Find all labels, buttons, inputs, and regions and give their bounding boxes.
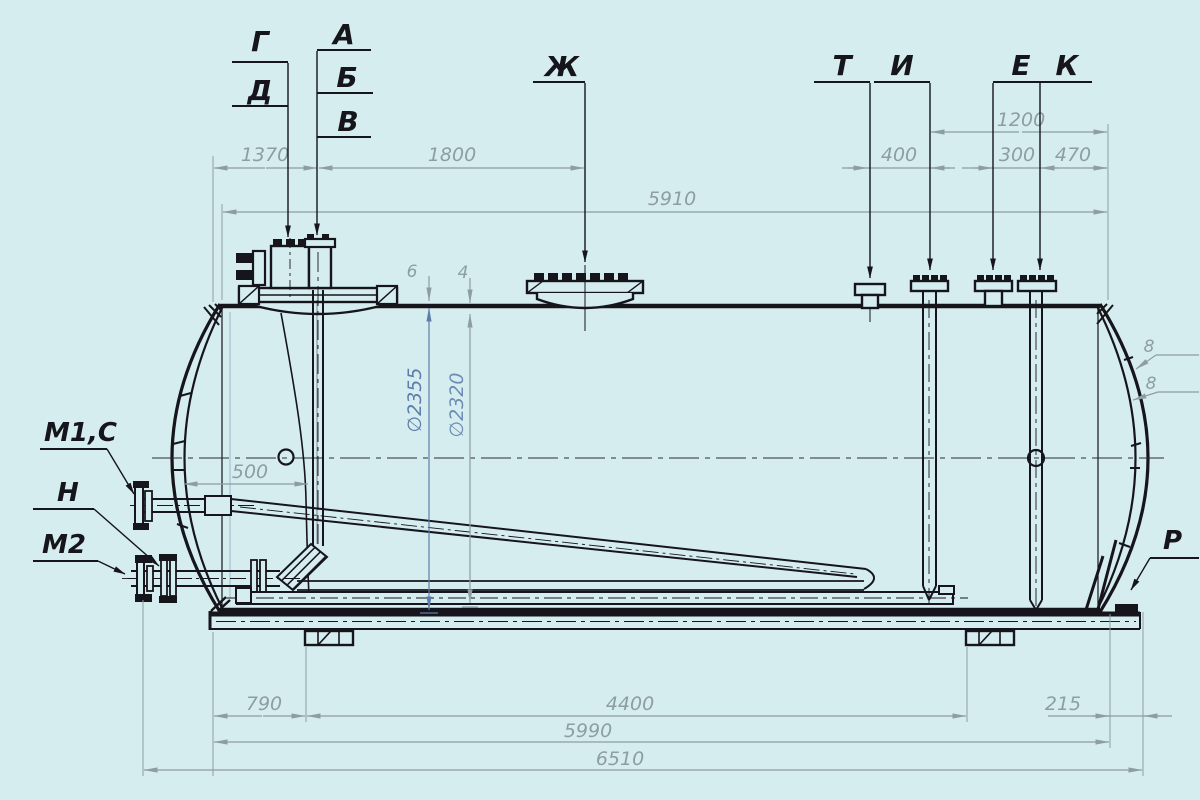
dim-thick-6: 6 xyxy=(407,262,418,282)
nozzle-label-m1c: М1,С xyxy=(44,418,117,448)
dim-6510: 6510 xyxy=(596,748,644,770)
m1c-flange-bar1 xyxy=(135,487,143,525)
m2-flange-bar1 xyxy=(137,562,144,595)
bottom-pipe-end-lip xyxy=(939,586,954,594)
grounding-pad-p xyxy=(1115,604,1138,613)
nozzle-label-d: Д xyxy=(247,74,273,107)
drawing-canvas: 1200 1370 1800 400 300 470 5910 500 ∅235… xyxy=(0,0,1200,800)
dim-1200: 1200 xyxy=(997,109,1045,131)
dim-1800: 1800 xyxy=(428,144,476,166)
nozzle-label-a: А xyxy=(331,18,355,51)
nozzle-abv-flange xyxy=(305,239,335,247)
n-flange-bar2 xyxy=(170,560,176,596)
inner-flange-bar2 xyxy=(260,560,266,596)
m1c-flange-bar2 xyxy=(145,491,152,521)
nozzle-label-t: Т xyxy=(832,49,853,82)
bottom-pipe-left-block xyxy=(236,588,251,603)
nozzle-label-p: Р xyxy=(1163,526,1182,556)
n-flange-bar1 xyxy=(161,560,167,596)
pipe-k-internal xyxy=(1028,292,1044,610)
nozzle-label-v: В xyxy=(337,105,358,138)
dim-790: 790 xyxy=(246,693,282,715)
dim-5910: 5910 xyxy=(648,188,696,210)
dim-thick-8-outer: 8 xyxy=(1144,337,1155,357)
flange-plate xyxy=(911,281,948,291)
side-flange-gd xyxy=(253,251,265,285)
nozzle-label-n: Н xyxy=(57,478,79,508)
nozzle-label-zh: Ж xyxy=(543,50,580,83)
nozzle-stem xyxy=(985,291,1002,306)
dim-dia-inner: ∅2320 xyxy=(446,373,468,438)
support-foot-right xyxy=(966,631,1014,645)
dim-4400: 4400 xyxy=(606,693,654,715)
nozzle-label-b: Б xyxy=(336,61,357,94)
nozzle-label-k: К xyxy=(1056,49,1081,82)
pipe-coupling xyxy=(205,496,231,515)
dim-400: 400 xyxy=(881,144,917,166)
dim-dia-outer: ∅2355 xyxy=(404,368,426,433)
dim-215: 215 xyxy=(1045,693,1081,715)
dim-300: 300 xyxy=(999,144,1035,166)
nozzle-label-i: И xyxy=(890,49,913,82)
flange-plate xyxy=(1018,281,1056,291)
dim-470: 470 xyxy=(1055,144,1091,166)
dim-5990: 5990 xyxy=(564,720,612,742)
nozzle-label-g: Г xyxy=(251,25,271,58)
flange-plate xyxy=(975,281,1012,291)
m2-flange-bar2 xyxy=(147,566,153,591)
support-foot-left xyxy=(305,631,353,645)
dim-1370: 1370 xyxy=(241,144,289,166)
nozzle-abv-pipe xyxy=(309,246,331,288)
nozzle-label-e: Е xyxy=(1011,49,1030,82)
boss-stem xyxy=(862,295,878,308)
dim-500: 500 xyxy=(232,461,268,483)
boss-cap xyxy=(855,284,885,295)
dim-thick-4: 4 xyxy=(458,263,469,283)
dim-thick-8-inner: 8 xyxy=(1146,374,1157,394)
drawing-sheet: 1200 1370 1800 400 300 470 5910 500 ∅235… xyxy=(0,0,1200,800)
nozzle-label-m2: М2 xyxy=(42,530,86,560)
